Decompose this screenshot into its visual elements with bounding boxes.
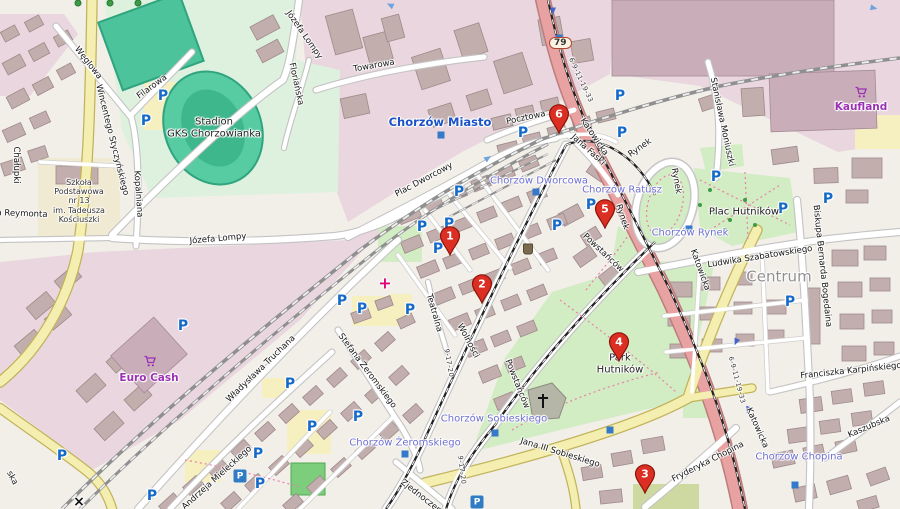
route-badge: 79 (549, 37, 572, 49)
map-viewport[interactable]: PPPPPPPPPPPPPPPPPPPPPPPPPPPP×+ 9-17-209-… (0, 0, 900, 509)
map-canvas (0, 0, 900, 509)
